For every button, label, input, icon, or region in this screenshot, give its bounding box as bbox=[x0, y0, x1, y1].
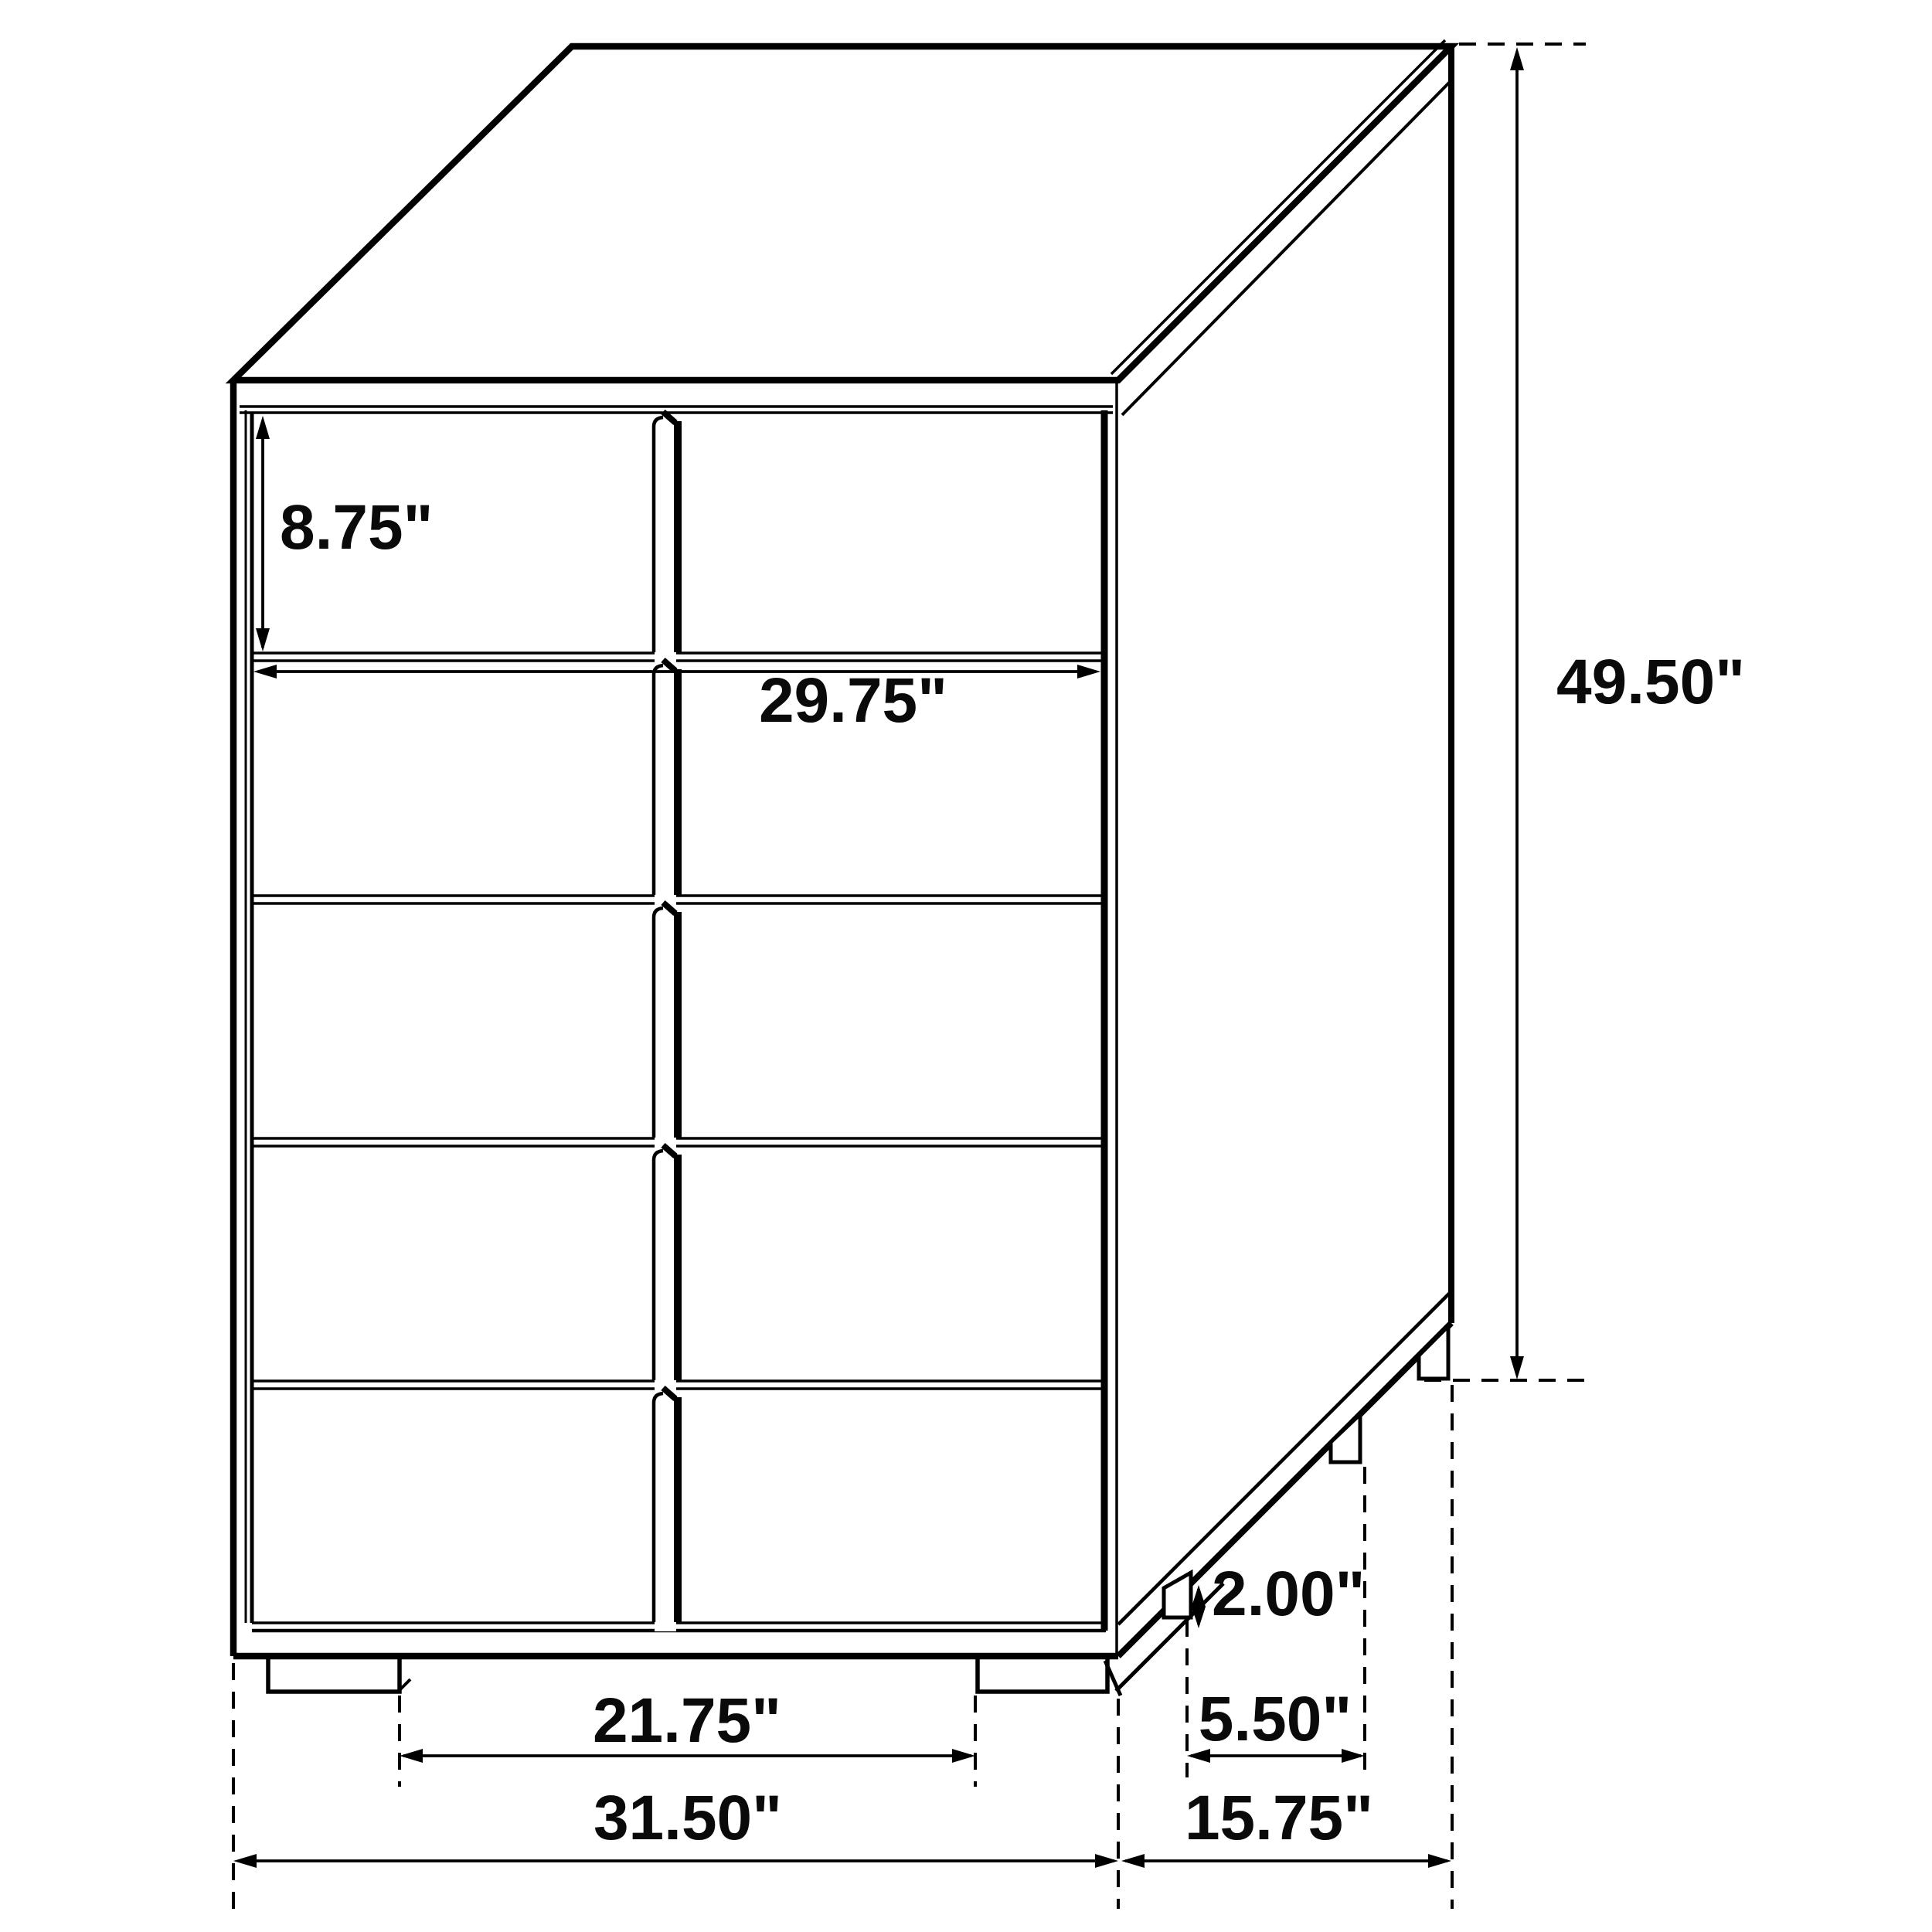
cabinet bbox=[233, 40, 1451, 1696]
arrow-down-icon bbox=[1192, 1607, 1206, 1628]
dim-leg-height: 2.00" bbox=[1192, 1559, 1365, 1629]
dim-overall-width-label: 31.50" bbox=[594, 1783, 782, 1853]
front-leg-left bbox=[268, 1658, 400, 1692]
arrow-left-icon bbox=[233, 1854, 257, 1868]
arrow-down-icon bbox=[256, 628, 270, 651]
front-leg-right bbox=[978, 1658, 1107, 1692]
pull-gap-5 bbox=[655, 1621, 676, 1631]
drawer-pull-2 bbox=[654, 660, 678, 895]
drawer-pull-3 bbox=[654, 903, 678, 1138]
dim-overall-height: 49.50" bbox=[1424, 44, 1745, 1380]
dim-overall-depth: 15.75" bbox=[1121, 1385, 1452, 1909]
arrow-left-icon bbox=[1121, 1854, 1145, 1868]
arrow-up-icon bbox=[1192, 1585, 1206, 1607]
dim-drawer-width-label: 29.75" bbox=[759, 665, 947, 736]
dim-front-leg-spacing-label: 21.75" bbox=[593, 1685, 781, 1756]
dim-drawer-height: 8.75" bbox=[256, 416, 433, 651]
dim-leg-height-label: 2.00" bbox=[1212, 1559, 1365, 1629]
top-face-outline bbox=[233, 46, 1451, 380]
drawer-pull-4 bbox=[654, 1145, 678, 1380]
dimension-diagram: 8.75" 29.75" 49.50" 2.00" bbox=[0, 0, 1932, 1932]
drawer-pull-5 bbox=[654, 1388, 678, 1622]
drawer-pull-1 bbox=[654, 412, 678, 652]
dim-overall-depth-label: 15.75" bbox=[1185, 1783, 1373, 1853]
arrow-right-icon bbox=[952, 1749, 975, 1763]
arrow-up-icon bbox=[256, 416, 270, 439]
side-leg-back bbox=[1419, 1326, 1448, 1379]
side-leg-middle bbox=[1331, 1414, 1360, 1462]
dim-front-leg-spacing: 21.75" bbox=[400, 1685, 975, 1787]
arrow-right-icon bbox=[1095, 1854, 1118, 1868]
chest-line-drawing: 8.75" 29.75" 49.50" 2.00" bbox=[0, 0, 1932, 1932]
dim-overall-height-label: 49.50" bbox=[1556, 647, 1745, 717]
arrow-left-icon bbox=[400, 1749, 423, 1763]
arrow-right-icon bbox=[1428, 1854, 1451, 1868]
arrow-left-icon bbox=[253, 665, 277, 679]
drawer-pulls bbox=[654, 412, 678, 1622]
arrow-down-icon bbox=[1510, 1356, 1524, 1379]
cabinet-top-face bbox=[233, 40, 1451, 380]
dim-side-leg-spacing-label: 5.50" bbox=[1199, 1684, 1352, 1754]
arrow-up-icon bbox=[1510, 47, 1524, 70]
dim-drawer-height-label: 8.75" bbox=[280, 492, 433, 563]
arrow-right-icon bbox=[1077, 665, 1100, 679]
side-leg-front bbox=[1164, 1573, 1191, 1617]
